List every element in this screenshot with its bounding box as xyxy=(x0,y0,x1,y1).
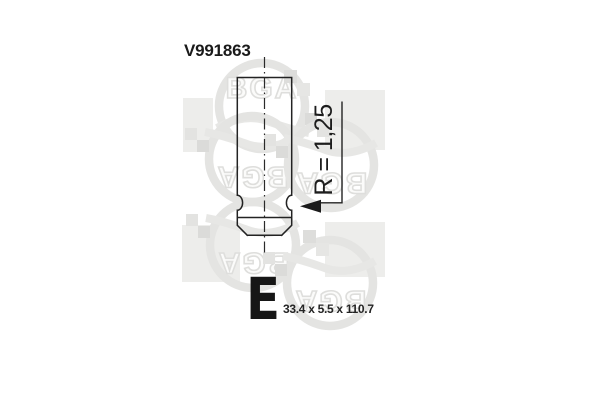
radius-annotation-label: R = 1,25 xyxy=(311,100,337,200)
catalog-drawing-page: BGA V991863 R = 1,25 xyxy=(0,0,600,400)
part-number: V991863 xyxy=(184,42,251,59)
arrowhead-icon xyxy=(300,200,321,213)
valve-drawing xyxy=(0,0,600,400)
valve-type-letter: E xyxy=(246,270,280,328)
valve-dimensions: 33.4 x 5.5 x 110.7 xyxy=(283,303,374,316)
